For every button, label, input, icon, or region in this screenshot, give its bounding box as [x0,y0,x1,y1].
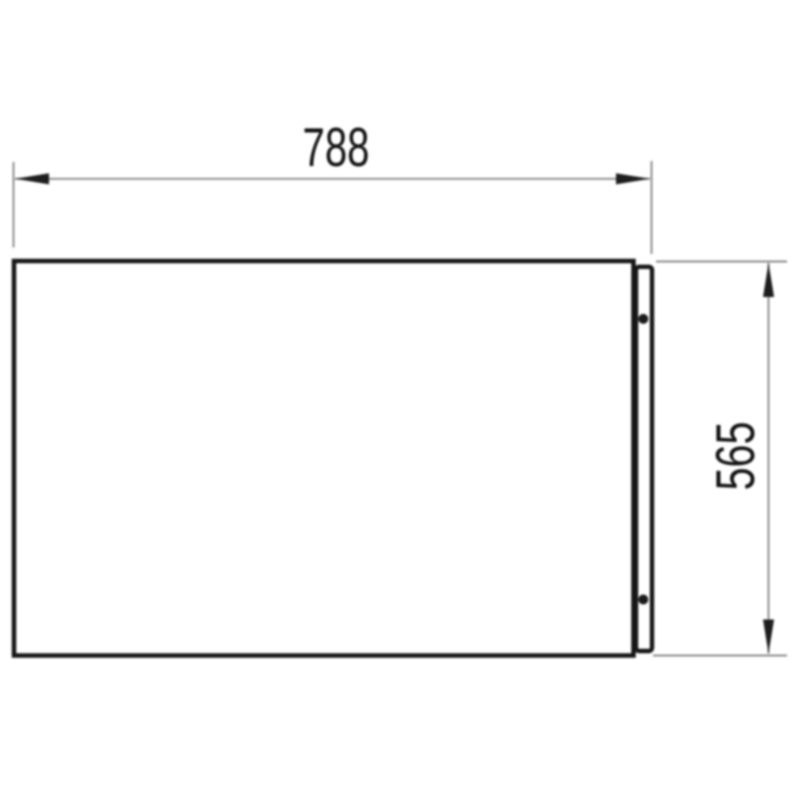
svg-text:788: 788 [303,117,370,179]
svg-text:565: 565 [705,422,766,491]
